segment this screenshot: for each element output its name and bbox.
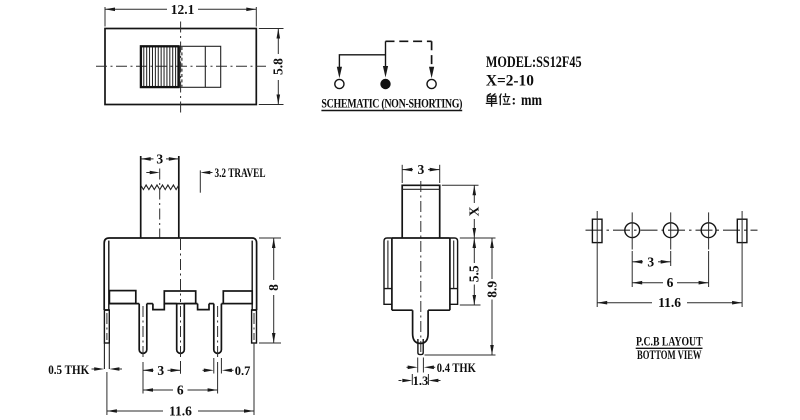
svg-text:8: 8 (266, 284, 281, 291)
svg-text:6: 6 (667, 275, 674, 290)
svg-text:11.6: 11.6 (169, 404, 192, 419)
svg-text:3: 3 (156, 151, 163, 166)
svg-text:3: 3 (157, 363, 164, 378)
svg-text::: : (512, 94, 517, 109)
svg-text:MODEL:SS12F45: MODEL:SS12F45 (486, 54, 582, 71)
svg-text:mm: mm (521, 92, 542, 109)
svg-text:12.1: 12.1 (171, 2, 195, 17)
svg-text:3: 3 (647, 254, 654, 269)
svg-text:0.7: 0.7 (235, 364, 251, 378)
svg-text:BOTTOM VIEW: BOTTOM VIEW (637, 348, 702, 362)
svg-text:5.8: 5.8 (271, 58, 286, 75)
svg-text:8.9: 8.9 (484, 281, 499, 298)
svg-text:5.5: 5.5 (467, 265, 482, 282)
svg-text:11.6: 11.6 (658, 295, 681, 310)
svg-text:3: 3 (418, 162, 425, 177)
svg-text:6: 6 (177, 383, 184, 398)
svg-text:3.2 TRAVEL: 3.2 TRAVEL (215, 166, 266, 180)
svg-text:1.3: 1.3 (413, 374, 429, 388)
svg-text:X: X (467, 206, 482, 216)
svg-text:0.5 THK: 0.5 THK (48, 363, 89, 377)
svg-text:0.4 THK: 0.4 THK (437, 361, 476, 375)
svg-text:P.C.B LAYOUT: P.C.B LAYOUT (636, 335, 703, 349)
svg-text:X=2-10: X=2-10 (486, 73, 534, 90)
svg-text:SCHEMATIC (NON-SHORTING): SCHEMATIC (NON-SHORTING) (321, 96, 462, 111)
